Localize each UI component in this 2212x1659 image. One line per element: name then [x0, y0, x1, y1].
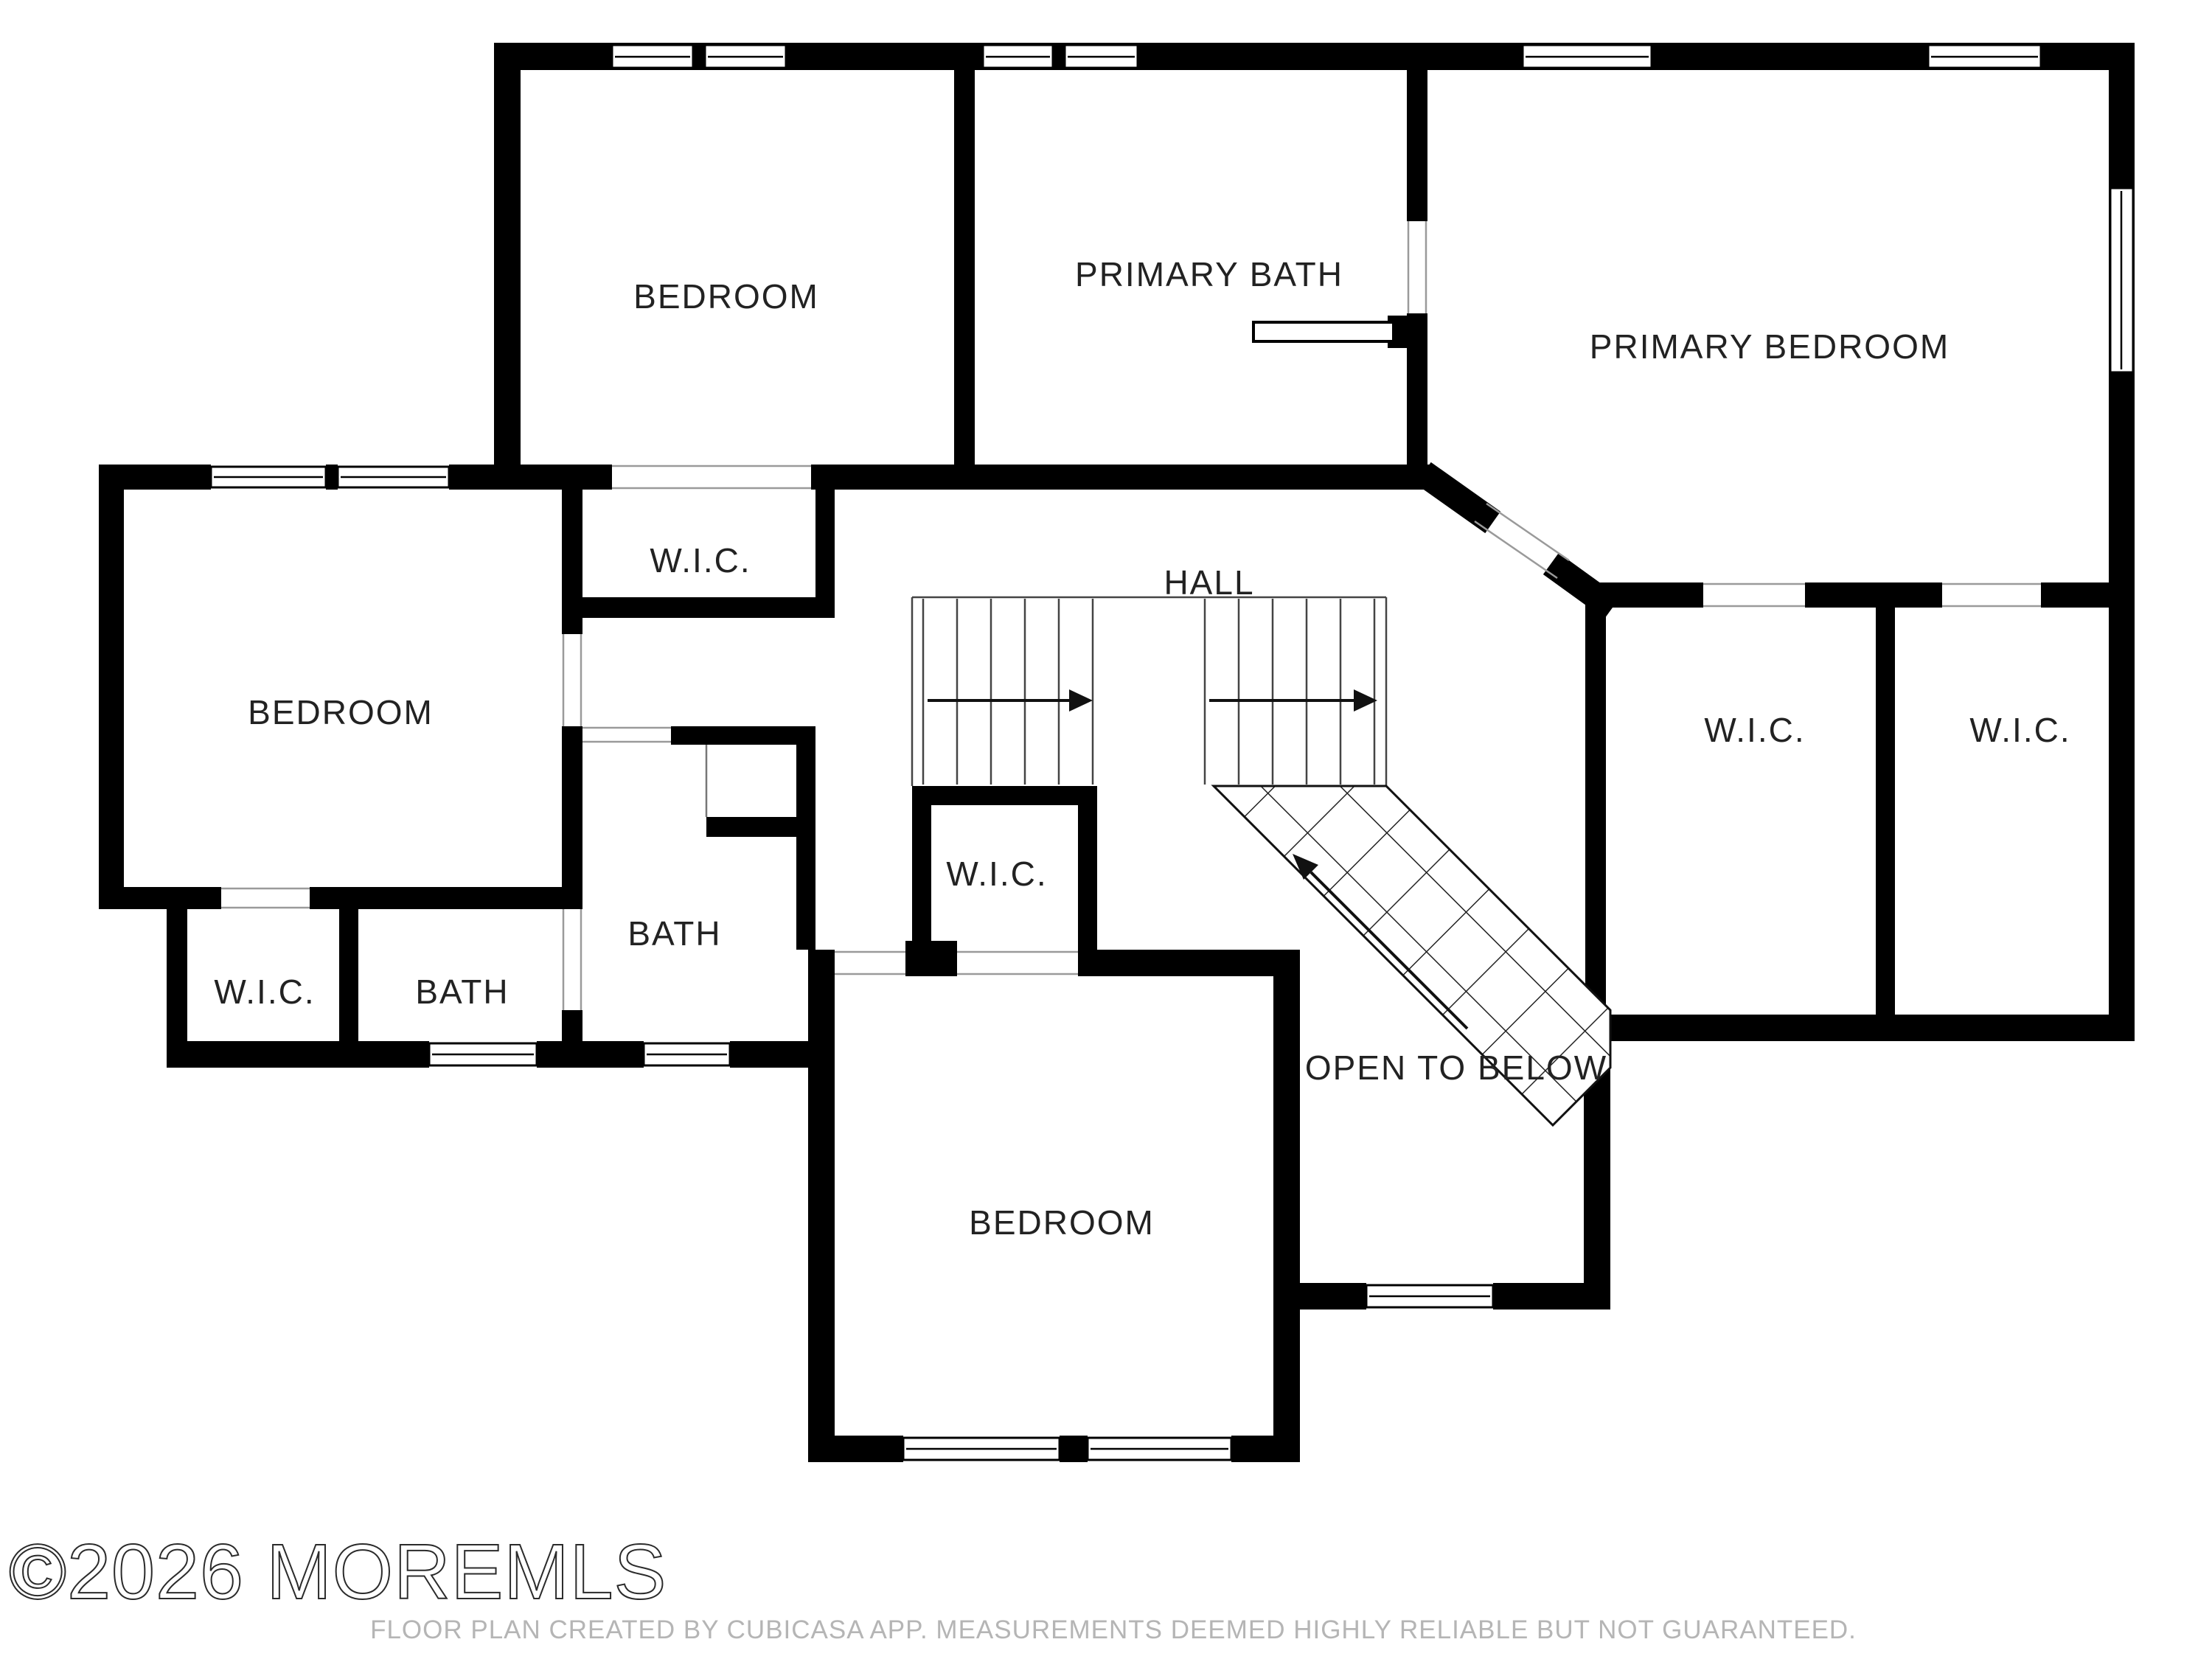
window: [983, 45, 1053, 68]
wall-segment: [954, 70, 975, 490]
room-label-hall: HALL: [1164, 563, 1254, 602]
room-label-wic-center: W.I.C.: [946, 855, 1047, 893]
room-label-primary-bath: PRIMARY BATH: [1075, 255, 1343, 293]
wall-segment: [1585, 582, 1606, 1041]
window: [1088, 1438, 1231, 1460]
wall-segment: [905, 941, 957, 963]
wall-segment: [796, 726, 815, 950]
window: [338, 467, 449, 487]
window: [2110, 188, 2133, 372]
wall-segment: [671, 726, 815, 745]
door-leaf: [1253, 322, 1394, 341]
wall-segment: [2041, 582, 2135, 608]
watermark: ©2026 MOREMLS: [9, 1528, 667, 1615]
wall-segment: [310, 887, 582, 909]
room-label-wic-right-1: W.I.C.: [1704, 711, 1805, 749]
window: [429, 1043, 537, 1065]
wall-segment: [562, 726, 582, 909]
wall-segment: [537, 1041, 644, 1068]
floor-plan: BEDROOM PRIMARY BATH PRIMARY BEDROOM HAL…: [0, 0, 2212, 1659]
wall-segment: [167, 909, 187, 1041]
wall-segment: [1493, 1283, 1610, 1310]
wall-segment: [1060, 1436, 1088, 1462]
wall-segment: [1805, 582, 1942, 608]
wall-segment: [582, 597, 835, 618]
room-label-open-to-below: OPEN TO BELOW: [1305, 1048, 1607, 1087]
wall-segment: [808, 950, 835, 1462]
wall-segment: [912, 786, 931, 950]
wall-segment: [811, 465, 1434, 490]
floor-plan-page: BEDROOM PRIMARY BATH PRIMARY BEDROOM HAL…: [0, 0, 2212, 1659]
wall-segment: [167, 1041, 429, 1068]
wall-segment: [808, 1436, 903, 1462]
window: [644, 1043, 730, 1065]
room-label-wic-top: W.I.C.: [650, 541, 751, 580]
wall-segment: [449, 465, 612, 490]
window: [612, 45, 693, 68]
wall-segment: [1273, 950, 1300, 1462]
room-label-wic-right-2: W.I.C.: [1969, 711, 2070, 749]
wall-segment: [562, 465, 582, 634]
wall-segment: [1078, 950, 1300, 976]
wall-segment: [1585, 1015, 2135, 1041]
wall-segment: [1078, 786, 1097, 950]
wall-segment: [99, 465, 124, 909]
wall-segment: [326, 465, 338, 490]
window: [1928, 45, 2041, 68]
window: [211, 467, 326, 487]
wall-segment: [706, 817, 796, 837]
wall-segment: [494, 43, 521, 490]
window: [1065, 45, 1138, 68]
room-label-bedroom-bottom: BEDROOM: [969, 1203, 1155, 1242]
window: [705, 45, 786, 68]
room-label-bath-left: BATH: [415, 973, 509, 1011]
window: [1366, 1285, 1493, 1307]
wall-segment: [912, 786, 1097, 805]
wall-segment: [99, 887, 221, 909]
room-label-primary-bedroom: PRIMARY BEDROOM: [1590, 327, 1950, 366]
wall-segment: [1231, 1436, 1300, 1462]
wall-segment: [339, 909, 358, 1041]
room-label-bath-middle: BATH: [627, 914, 721, 953]
room-label-wic-bottom-left: W.I.C.: [214, 973, 315, 1011]
wall-segment: [815, 465, 835, 618]
wall-segment: [1876, 608, 1895, 1041]
footer-disclaimer: FLOOR PLAN CREATED BY CUBICASA APP. MEAS…: [370, 1615, 1857, 1644]
window: [903, 1438, 1060, 1460]
room-label-bedroom-left: BEDROOM: [248, 693, 434, 731]
wall-segment: [1407, 70, 1427, 221]
room-label-bedroom-top: BEDROOM: [633, 277, 819, 316]
window: [1523, 45, 1652, 68]
